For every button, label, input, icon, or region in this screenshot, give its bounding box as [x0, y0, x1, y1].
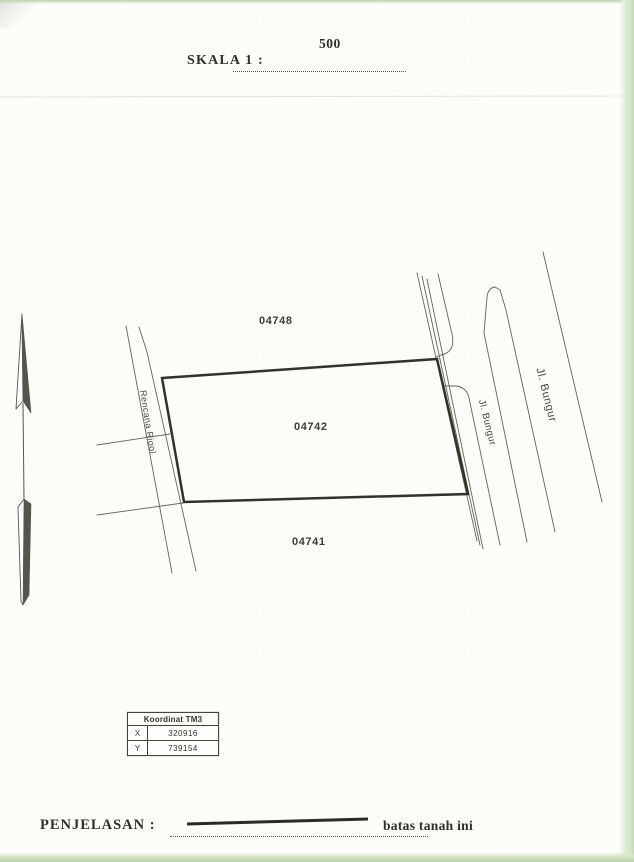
scale-value: 500 [319, 36, 341, 52]
parcel-label-04748: 04748 [259, 315, 293, 327]
street-label-jl-bungur-inner: Jl. Bungur [474, 390, 500, 455]
canal-label-rencana-riool: Rencana Riool [135, 372, 161, 472]
parcel-label-04742: 04742 [294, 421, 328, 433]
table-row: X 320916 [128, 726, 218, 741]
scale-dotted-line [233, 59, 406, 72]
scan-edge-right [619, 0, 634, 862]
road-lines [417, 252, 602, 549]
scan-corner-shadow [0, 0, 52, 28]
parcel-label-04741: 04741 [292, 536, 326, 548]
coordinate-x-value: 320916 [148, 726, 218, 740]
scan-edge-top [0, 0, 634, 4]
coordinate-table-title: Koordinat TM3 [128, 713, 218, 726]
scanned-survey-document: 500 SKALA 1 : [0, 0, 634, 862]
fold-line [0, 96, 621, 97]
north-arrow-icon [16, 314, 31, 605]
street-label-jl-bungur-outer: Jl. Bungur [531, 359, 560, 432]
coordinate-y-value: 739154 [148, 741, 218, 755]
legend-caption: batas tanah ini [383, 818, 473, 834]
coordinate-table: Koordinat TM3 X 320916 Y 739154 [127, 712, 219, 756]
scan-edge-bottom [0, 852, 634, 862]
coordinate-x-label: X [128, 726, 148, 740]
penjelasan-label: PENJELASAN : [40, 817, 156, 834]
coordinate-y-label: Y [128, 741, 148, 755]
table-row: Y 739154 [128, 741, 218, 755]
